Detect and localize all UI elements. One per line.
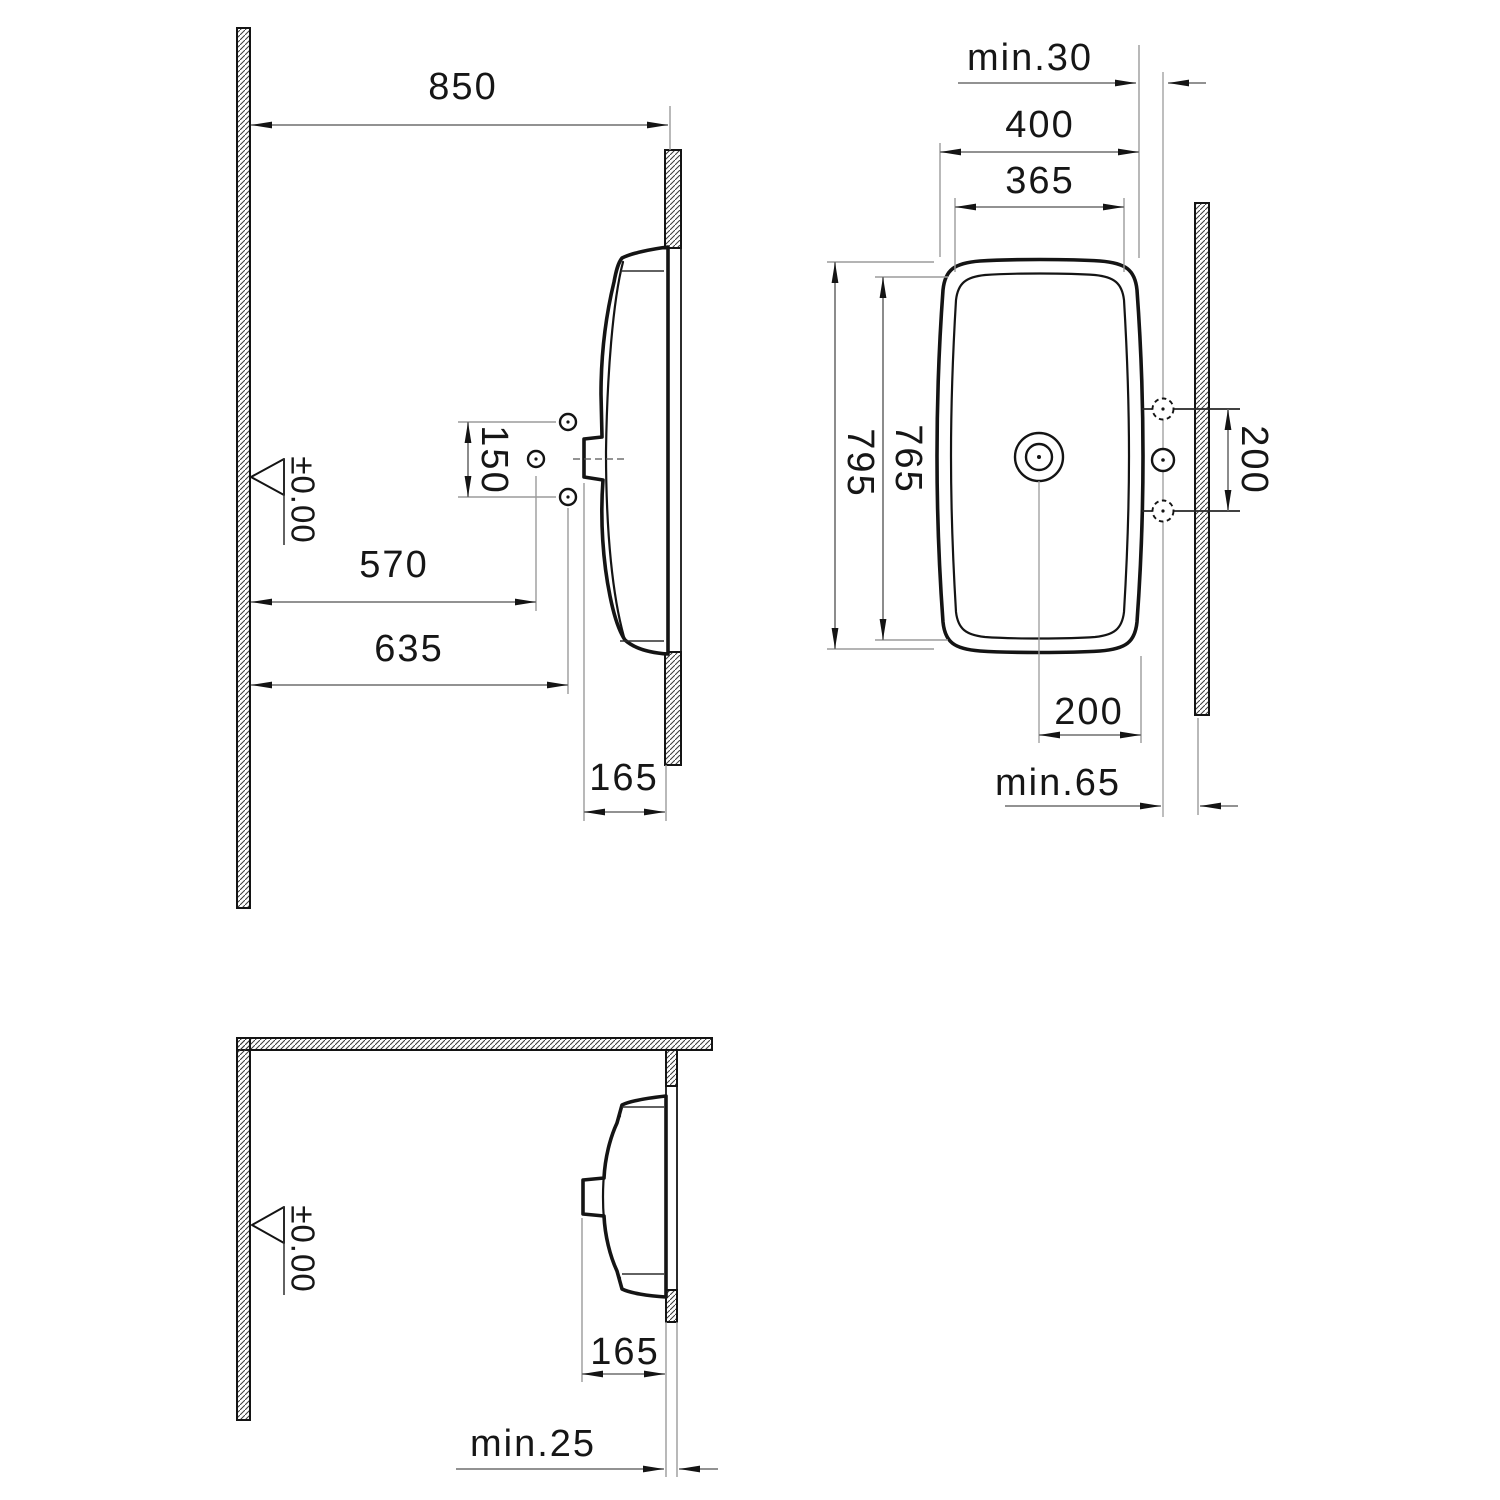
- dim-165-side-label: 165: [589, 757, 658, 799]
- dim-365: 365: [955, 160, 1124, 272]
- corner-top-wall-section: [237, 1038, 712, 1050]
- dim-200-tapholes-label: 200: [1233, 425, 1275, 494]
- drawing-page: ±0.00 850 150 570 635: [0, 0, 1500, 1500]
- dim-200-drain-label: 200: [1054, 691, 1123, 733]
- dim-850-label: 850: [428, 66, 497, 108]
- dim-min30-label: min.30: [967, 37, 1093, 79]
- basin-plan-outline: [937, 260, 1143, 653]
- corner-level-triangle-icon: [252, 1207, 284, 1243]
- dim-min30: min.30: [958, 37, 1206, 258]
- side-elevation-view: ±0.00 850 150 570 635: [237, 28, 681, 908]
- mounting-hole-bottom-center: [566, 495, 569, 498]
- dim-635-label: 635: [374, 628, 443, 670]
- side-view-level-marker: ±0.00: [251, 456, 322, 545]
- dim-150-label: 150: [473, 425, 515, 494]
- taphole-option-bottom-center: [1161, 509, 1164, 512]
- side-level-label: ±0.00: [285, 456, 322, 543]
- corner-installation-view: ±0.00 165 min.25: [237, 1038, 718, 1477]
- plan-view-wall-section: [1195, 203, 1209, 715]
- mounting-wall-hatch-upper: [665, 150, 681, 248]
- level-triangle-icon: [251, 459, 284, 495]
- corner-level-label: ±0.00: [285, 1205, 322, 1292]
- dim-400-label: 400: [1005, 104, 1074, 146]
- dim-min25: min.25: [456, 1423, 718, 1469]
- basin-corner-outline: [583, 1096, 666, 1297]
- basin-corner-profile: [583, 1096, 666, 1297]
- dim-570-label: 570: [359, 544, 428, 586]
- tap-holes: [1142, 399, 1240, 522]
- mounting-hole-middle-center: [534, 457, 537, 460]
- mounting-wall-hatch-lower: [665, 652, 681, 765]
- basin-side-profile: [528, 247, 668, 654]
- basin-side-outline: [584, 247, 668, 654]
- dim-795-label: 795: [839, 428, 881, 497]
- mounting-hole-top-center: [566, 420, 569, 423]
- dim-200-tapholes: 200: [1228, 409, 1275, 511]
- dim-165-corner-label: 165: [590, 1331, 659, 1373]
- taphole-center-point: [1161, 458, 1165, 462]
- plan-view: min.30 400 365 795 765: [827, 37, 1275, 817]
- taphole-option-top-center: [1161, 407, 1164, 410]
- corner-mounting-wall-hatch-upper: [666, 1050, 677, 1086]
- side-view-reference-wall-section: [237, 28, 250, 908]
- dim-min25-label: min.25: [470, 1423, 596, 1465]
- technical-drawing-canvas: ±0.00 850 150 570 635: [0, 0, 1500, 1500]
- dim-365-label: 365: [1005, 160, 1074, 202]
- drain-center-point: [1037, 455, 1041, 459]
- dim-min65-label: min.65: [995, 762, 1121, 804]
- dim-850: 850: [251, 66, 670, 150]
- dim-765-label: 765: [887, 424, 929, 493]
- corner-side-wall-section: [237, 1038, 250, 1420]
- corner-level-marker: ±0.00: [252, 1205, 322, 1295]
